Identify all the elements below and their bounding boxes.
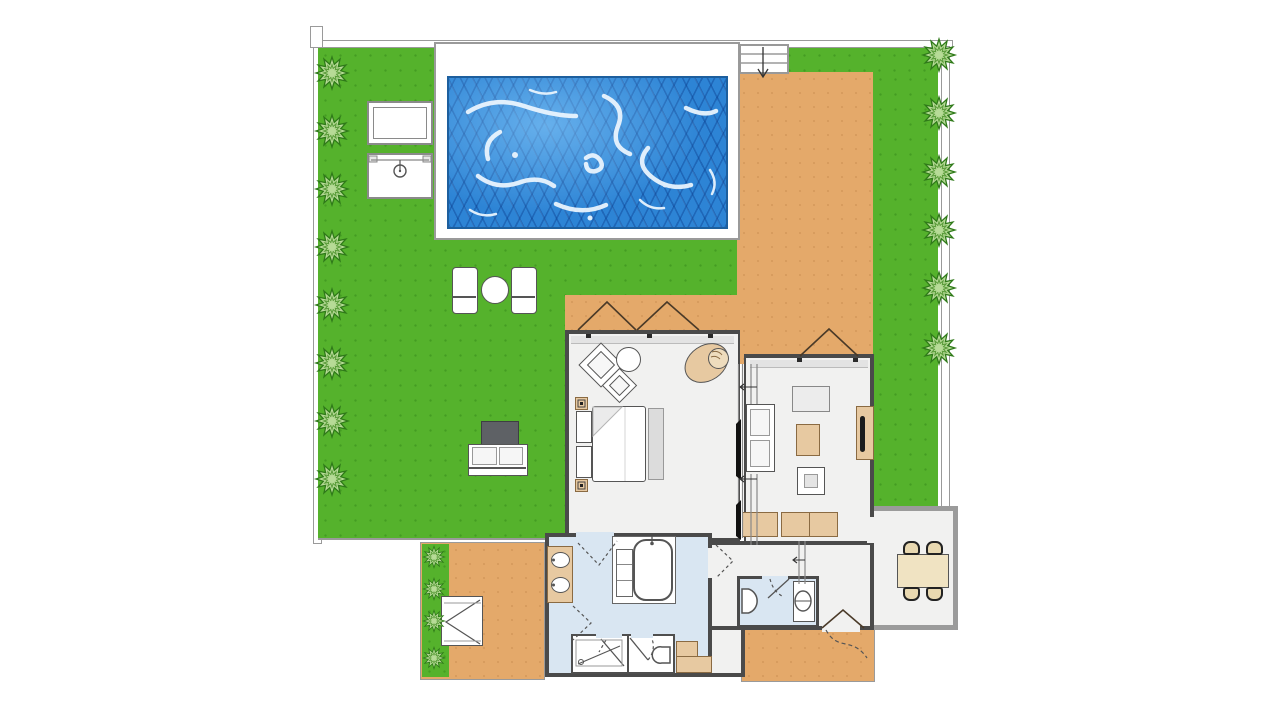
wooden-deck-band: [565, 295, 739, 334]
sideboard: [781, 512, 838, 537]
bedroom-bench: [648, 408, 664, 480]
lounger-bar: [512, 296, 535, 298]
sofa-cushion: [750, 440, 770, 467]
door-gap-hall: [708, 548, 716, 578]
sofa-cushion: [472, 447, 497, 465]
barbecue-grill: [367, 153, 433, 199]
tv-cabinet: [856, 406, 874, 460]
door-gap-bed-bath: [576, 532, 614, 542]
console-table: [792, 386, 830, 412]
chair-cushion: [609, 375, 630, 396]
coffee-table: [796, 424, 820, 456]
bath-cabinet: [616, 549, 633, 597]
nightstand: [576, 411, 592, 443]
entry-steps: [739, 44, 789, 74]
vanity-sink: [551, 552, 570, 568]
bedside-lamp: [575, 479, 588, 492]
dining-chair: [926, 587, 943, 601]
double-bed: [592, 406, 646, 482]
tv: [860, 416, 865, 452]
egg-chair-headrest: [708, 348, 729, 369]
pouf: [797, 467, 825, 495]
toilet-room: [627, 634, 675, 674]
sofa-cushion: [750, 409, 770, 436]
sideboard: [742, 512, 778, 537]
bathtub: [633, 539, 673, 601]
vanity-sink: [551, 577, 570, 593]
dining-chair: [903, 541, 920, 555]
sideboard-divider: [809, 513, 810, 536]
pouf-top: [804, 474, 818, 488]
cabinet-shelf: [617, 564, 632, 565]
cabinet-shelf: [617, 580, 632, 581]
sofa-base-line: [469, 467, 526, 469]
outdoor-sofa: [468, 444, 528, 476]
shower-room: [571, 634, 629, 674]
dining-chair: [926, 541, 943, 555]
dining-table: [897, 554, 949, 588]
outdoor-shower-tray: [441, 596, 483, 646]
dining-chair: [903, 587, 920, 601]
door-gap-wc: [762, 576, 788, 582]
corner-counter: [676, 656, 712, 673]
garden-dark-table: [481, 421, 519, 445]
lounger-bar: [453, 296, 476, 298]
side-table: [616, 347, 641, 372]
pool-side-table: [367, 101, 433, 145]
door-gap-dining: [867, 517, 876, 543]
sofa: [746, 404, 775, 472]
sun-lounger: [452, 267, 478, 314]
nightstand: [576, 446, 592, 478]
floor-plan: [0, 0, 1280, 720]
door-gap-toilet: [631, 634, 653, 638]
sun-lounger: [511, 267, 537, 314]
table-inner: [373, 107, 427, 139]
door-gap-shower: [596, 634, 622, 638]
garden-lawn-right: [873, 72, 938, 510]
bedside-lamp: [575, 397, 588, 410]
fence-right: [941, 46, 950, 514]
rear-deck: [741, 626, 875, 682]
wooden-deck: [737, 72, 873, 364]
sofa-cushion: [499, 447, 523, 465]
living-window-sill: [750, 360, 868, 368]
swimming-pool: [447, 76, 728, 229]
door-gap-entry: [822, 624, 860, 632]
fence-post: [310, 26, 323, 48]
wc-sink-cabinet: [793, 581, 815, 622]
garden-round-table: [481, 276, 509, 304]
